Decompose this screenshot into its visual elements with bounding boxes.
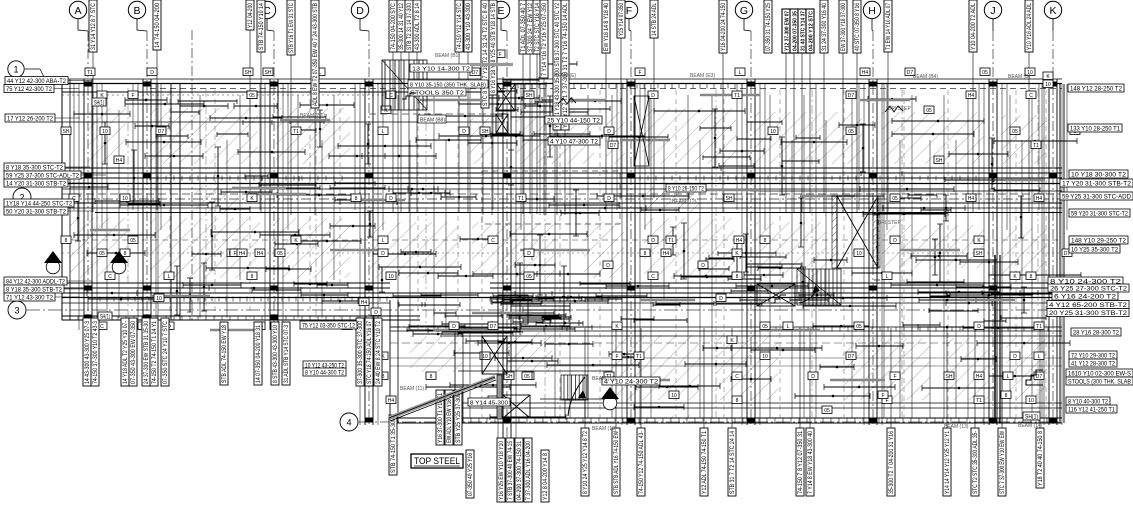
svg-text:20 Y25 31-300 STB-T2: 20 Y25 31-300 STB-T2 bbox=[1049, 311, 1128, 317]
svg-text:D7: D7 bbox=[472, 70, 479, 76]
svg-text:BEAM (E3): BEAM (E3) bbox=[690, 73, 715, 79]
svg-text:40 STC 07-350 8 Y16: 40 STC 07-350 8 Y16 bbox=[855, 2, 861, 51]
svg-text:G: G bbox=[740, 5, 748, 17]
svg-text:D: D bbox=[381, 251, 385, 257]
svg-text:28 Y16 28-300 T2: 28 Y16 28-300 T2 bbox=[1073, 331, 1120, 337]
svg-text:31 24 37-300 Y16 40: 31 24 37-300 Y16 40 bbox=[822, 2, 828, 51]
svg-text:BEAM (13): BEAM (13) bbox=[944, 424, 969, 430]
svg-text:31 ADL STB Y14 STC 07-3: 31 ADL STB Y14 STC 07-3 bbox=[284, 324, 290, 383]
svg-text:D7: D7 bbox=[490, 324, 497, 330]
svg-text:10: 10 bbox=[388, 274, 394, 280]
svg-text:H4: H4 bbox=[1036, 196, 1043, 202]
svg-text:74-150 Y12 74-150 ADL 43-: 74-150 Y12 74-150 ADL 43- bbox=[639, 431, 645, 494]
svg-text:D: D bbox=[452, 324, 456, 330]
svg-text:8: 8 bbox=[251, 274, 254, 280]
svg-text:BRI.STEP: BRI.STEP bbox=[888, 106, 911, 112]
svg-text:05: 05 bbox=[99, 251, 105, 257]
svg-text:BEAM (B4): BEAM (B4) bbox=[913, 74, 938, 80]
svg-text:F: F bbox=[131, 93, 134, 99]
svg-text:BEAM (B8): BEAM (B8) bbox=[420, 118, 445, 124]
svg-text:BEAM (B1): BEAM (B1) bbox=[300, 113, 325, 119]
svg-text:F: F bbox=[893, 374, 896, 380]
svg-text:SH: SH bbox=[946, 374, 953, 380]
svg-text:05: 05 bbox=[526, 274, 532, 280]
svg-text:H4: H4 bbox=[239, 251, 246, 257]
svg-text:8: 8 bbox=[124, 251, 127, 257]
svg-text:116 Y12 41-250 T1: 116 Y12 41-250 T1 bbox=[1068, 408, 1116, 414]
svg-text:H4: H4 bbox=[862, 70, 869, 76]
svg-text:8 Y16 Y18 Y18 Y25 40 STB Y18 1: 8 Y16 Y18 Y18 Y25 40 STB Y18 14 STB bbox=[491, 3, 497, 93]
svg-text:L: L bbox=[739, 70, 742, 76]
svg-text:10: 10 bbox=[1028, 398, 1034, 404]
svg-text:SH(1): SH(1) bbox=[94, 101, 104, 107]
svg-text:35-300 14 31 40 Y12: 35-300 14 31 40 Y12 bbox=[399, 2, 405, 50]
svg-text:TOP STEEL: TOP STEEL bbox=[414, 456, 460, 466]
svg-text:10: 10 bbox=[856, 251, 862, 257]
svg-text:43-300 Y10 43-300: 43-300 Y10 43-300 bbox=[466, 2, 472, 50]
svg-text:T1: T1 bbox=[518, 196, 524, 202]
svg-text:D: D bbox=[719, 296, 723, 302]
svg-text:H4: H4 bbox=[257, 251, 264, 257]
svg-text:F: F bbox=[498, 52, 501, 58]
svg-text:05: 05 bbox=[982, 70, 988, 76]
svg-text:SH: SH bbox=[63, 129, 70, 135]
svg-text:07-350 STC 24 Y10 7 STC: 07-350 STC 24 Y10 7 STC bbox=[163, 320, 169, 384]
svg-text:C: C bbox=[651, 274, 655, 280]
svg-text:T1: T1 bbox=[636, 354, 642, 360]
svg-text:D: D bbox=[1013, 354, 1017, 360]
svg-text:7 STB 37-300 40 EW 74-15: 7 STB 37-300 40 EW 74-15 bbox=[508, 440, 514, 500]
svg-text:H4: H4 bbox=[968, 196, 975, 202]
svg-text:8: 8 bbox=[764, 238, 767, 244]
svg-text:H4: H4 bbox=[976, 374, 983, 380]
svg-text:10: 10 bbox=[770, 129, 776, 135]
svg-text:D7: D7 bbox=[158, 129, 165, 135]
svg-text:8 Y10 35-150 (350 THK. SLAB): 8 Y10 35-150 (350 THK. SLAB) bbox=[410, 83, 486, 89]
svg-text:148 Y10 29-250 T2: 148 Y10 29-250 T2 bbox=[1071, 239, 1127, 245]
svg-text:STB STB ADL Y16 74-150 EW: STB STB ADL Y16 74-150 EW bbox=[614, 431, 620, 494]
svg-text:B: B bbox=[133, 5, 140, 17]
svg-text:13 Y10 14-300 T2: 13 Y10 14-300 T2 bbox=[412, 67, 470, 73]
svg-text:J: J bbox=[990, 5, 995, 17]
svg-text:F: F bbox=[233, 251, 236, 257]
svg-text:EW Y18 14 8 Y18 40: EW Y18 14 8 Y18 40 bbox=[604, 2, 610, 51]
svg-text:05: 05 bbox=[824, 408, 830, 414]
svg-text:8: 8 bbox=[644, 251, 647, 257]
svg-text:STB 31 7 T2 14 STC 24 14: STB 31 7 T2 14 STC 24 14 bbox=[730, 430, 736, 494]
svg-text:14 43-300 43-300 Y25 07-3: 14 43-300 43-300 Y25 07-3 bbox=[85, 320, 91, 384]
svg-text:BEAM (12): BEAM (12) bbox=[672, 199, 697, 205]
svg-text:7 Y14 8 EW Y18 43-300 40: 7 Y14 8 EW Y18 43-300 40 bbox=[808, 430, 814, 494]
svg-text:BEAM (14): BEAM (14) bbox=[1018, 423, 1043, 429]
svg-text:10: 10 bbox=[671, 393, 677, 399]
svg-text:14 74-150 04-200: 14 74-150 04-200 bbox=[155, 2, 161, 48]
svg-text:17 Y12 26-200 T2: 17 Y12 26-200 T2 bbox=[7, 117, 54, 123]
svg-text:STB T2 31 14 37-300: STB T2 31 14 37-300 bbox=[407, 2, 413, 50]
svg-text:8: 8 bbox=[1030, 274, 1033, 280]
svg-text:10: 10 bbox=[156, 296, 162, 302]
svg-text:10 Y18 30-300 T2: 10 Y18 30-300 T2 bbox=[1071, 173, 1127, 179]
svg-text:T1: T1 bbox=[976, 398, 982, 404]
svg-text:Y10 Y16 ADL 24 ADL: Y10 Y16 ADL 24 ADL bbox=[1027, 2, 1033, 50]
svg-text:SH: SH bbox=[526, 93, 533, 99]
svg-text:H: H bbox=[868, 5, 876, 17]
svg-text:D: D bbox=[811, 374, 815, 380]
svg-text:BEAM (13): BEAM (13) bbox=[592, 426, 617, 432]
svg-text:STB Y25 Y25 37-300: STB Y25 Y25 37-300 bbox=[456, 392, 462, 443]
svg-text:05: 05 bbox=[1012, 129, 1018, 135]
svg-text:148 Y12 28-250 T2: 148 Y12 28-250 T2 bbox=[1070, 87, 1123, 93]
svg-text:4: 4 bbox=[346, 418, 351, 428]
svg-text:8 STB 43-300 43-300 Y10: 8 STB 43-300 43-300 Y10 bbox=[273, 324, 279, 383]
svg-text:SH: SH bbox=[726, 196, 733, 202]
svg-text:BEAM (E): BEAM (E) bbox=[554, 73, 577, 79]
svg-text:07-350 43-300 EW 07-350: 07-350 43-300 EW 07-350 bbox=[131, 320, 137, 384]
svg-text:H4: H4 bbox=[736, 238, 743, 244]
svg-text:H4: H4 bbox=[388, 398, 395, 404]
svg-text:T1: T1 bbox=[1036, 324, 1042, 330]
svg-text:74-150 Y12 Y14 STC: 74-150 Y12 Y14 STC bbox=[457, 2, 463, 50]
svg-text:EW 37-300 Y18 37-300: EW 37-300 Y18 37-300 bbox=[841, 2, 847, 51]
svg-text:1: 1 bbox=[13, 65, 18, 75]
svg-text:L: L bbox=[1038, 354, 1041, 360]
svg-text:05: 05 bbox=[762, 324, 768, 330]
svg-text:SH(1): SH(1) bbox=[100, 315, 110, 321]
svg-text:D: D bbox=[527, 251, 531, 257]
svg-text:14 Y20 31-300 STB-T2: 14 Y20 31-300 STB-T2 bbox=[6, 182, 67, 188]
svg-text:STB 74-150 T1 35-300: STB 74-150 T1 35-300 bbox=[391, 417, 397, 473]
svg-text:L: L bbox=[168, 274, 171, 280]
svg-text:D: D bbox=[606, 263, 610, 269]
svg-text:H4: H4 bbox=[361, 300, 368, 306]
svg-text:8 Y10 26-150 T2: 8 Y10 26-150 T2 bbox=[668, 187, 705, 193]
svg-text:8 Y10 44-300 T2: 8 Y10 44-300 T2 bbox=[305, 371, 345, 377]
svg-text:STB Y16 T1 EW 31 STC: STB Y16 T1 EW 31 STC bbox=[289, 2, 295, 53]
svg-text:10: 10 bbox=[1045, 82, 1051, 88]
svg-text:A: A bbox=[74, 5, 81, 17]
svg-text:SH: SH bbox=[936, 158, 943, 164]
svg-text:43-300 ADL T2 8 14: 43-300 ADL T2 8 14 bbox=[415, 2, 421, 50]
svg-text:BRI.STEP: BRI.STEP bbox=[878, 220, 901, 226]
svg-text:BEAM (11): BEAM (11) bbox=[592, 376, 616, 382]
svg-text:8: 8 bbox=[355, 196, 358, 202]
svg-text:STOOLS (300 THK. SLAB: STOOLS (300 THK. SLAB bbox=[1068, 380, 1131, 386]
svg-text:D: D bbox=[374, 310, 378, 316]
svg-text:Y25 Y14 07-350: Y25 Y14 07-350 bbox=[619, 2, 625, 36]
svg-text:37-300 35-300 STC 37-300: 37-300 35-300 STC 37-300 bbox=[358, 320, 364, 384]
svg-text:05: 05 bbox=[856, 324, 862, 330]
svg-text:10: 10 bbox=[482, 354, 488, 360]
svg-text:04-200 Y12 STC: 04-200 Y12 STC bbox=[809, 11, 815, 51]
svg-text:L: L bbox=[382, 129, 385, 135]
svg-text:10: 10 bbox=[762, 354, 768, 360]
svg-text:T1: T1 bbox=[87, 70, 93, 76]
svg-text:44 Y12 42-300 ABA-T2: 44 Y12 42-300 ABA-T2 bbox=[7, 79, 67, 85]
svg-text:STC 8 Y18 7 Y18 T2 14 31 24 T2: STC 8 Y18 7 Y18 T2 14 31 24 T2 STC 8 40 bbox=[483, 2, 489, 106]
svg-text:14 STB 24 ADL: 14 STB 24 ADL bbox=[652, 2, 658, 36]
svg-text:SH: SH bbox=[245, 70, 252, 76]
svg-text:BEAM (B): BEAM (B) bbox=[1008, 74, 1031, 80]
svg-text:8: 8 bbox=[736, 398, 739, 404]
svg-text:14 07-350 04-200 Y18 31: 14 07-350 04-200 Y18 31 bbox=[256, 324, 262, 383]
svg-text:7 Y14 Y16 T2 Y16 Y25 07-350: 7 Y14 Y16 T2 Y16 Y25 07-350 bbox=[542, 2, 548, 76]
svg-text:25 Y10 44-150 T2: 25 Y10 44-150 T2 bbox=[547, 119, 601, 125]
svg-text:50 Y20 31-300 STB-T2: 50 Y20 31-300 STB-T2 bbox=[6, 210, 67, 216]
svg-text:8 Y14 45-300: 8 Y14 45-300 bbox=[470, 401, 508, 407]
svg-text:T1: T1 bbox=[668, 238, 674, 244]
svg-text:L: L bbox=[1007, 374, 1010, 380]
svg-text:F: F bbox=[638, 70, 641, 76]
svg-text:C: C bbox=[1029, 93, 1033, 99]
svg-text:05: 05 bbox=[848, 129, 854, 135]
svg-text:Y14 14 Y14 Y12 Y25 Y12 Y1: Y14 14 Y14 Y12 Y25 Y12 Y1 bbox=[945, 430, 951, 494]
svg-text:05: 05 bbox=[277, 251, 283, 257]
svg-text:SH(1): SH(1) bbox=[1025, 415, 1038, 421]
svg-text:10: 10 bbox=[122, 196, 128, 202]
svg-text:10 Y25 35-300 T2: 10 Y25 35-300 T2 bbox=[1071, 248, 1119, 254]
svg-text:STOOLS 350 T2: STOOLS 350 T2 bbox=[410, 91, 464, 97]
svg-text:D: D bbox=[701, 263, 705, 269]
svg-text:STB ADL 74-150 EW Y18: STB ADL 74-150 EW Y18 bbox=[222, 324, 228, 383]
svg-text:D: D bbox=[607, 196, 611, 202]
svg-text:71 Y12 43-300 T2: 71 Y12 43-300 T2 bbox=[6, 296, 54, 302]
svg-text:D7: D7 bbox=[848, 354, 855, 360]
svg-text:6 Y16 24-200 T2: 6 Y16 24-200 T2 bbox=[1054, 295, 1117, 301]
svg-text:C: C bbox=[735, 374, 739, 380]
svg-text:H4: H4 bbox=[968, 93, 975, 99]
svg-text:STB 74-150 Y10 14: STB 74-150 Y10 14 bbox=[259, 2, 265, 50]
svg-text:D: D bbox=[356, 5, 364, 17]
svg-text:D: D bbox=[977, 324, 981, 330]
svg-text:SH: SH bbox=[482, 129, 489, 135]
svg-text:F: F bbox=[615, 354, 618, 360]
svg-text:24 37-300 EW STB 31 35-30: 24 37-300 EW STB 31 35-30 bbox=[144, 320, 150, 384]
svg-text:L: L bbox=[886, 274, 889, 280]
svg-text:05: 05 bbox=[926, 108, 932, 114]
svg-text:3: 3 bbox=[14, 306, 19, 316]
svg-text:SH: SH bbox=[265, 70, 272, 76]
svg-text:8: 8 bbox=[430, 374, 433, 380]
svg-text:T1: T1 bbox=[293, 129, 299, 135]
svg-text:H4: H4 bbox=[116, 158, 123, 164]
svg-text:T1: T1 bbox=[734, 93, 740, 99]
svg-text:74-150 04-200 STC: 74-150 04-200 STC bbox=[391, 2, 397, 50]
svg-text:8 Y10 24 Y25 Y12 Y14 8 T2: 8 Y10 24 Y25 Y12 Y14 8 T2 bbox=[583, 430, 589, 494]
svg-text:8: 8 bbox=[65, 238, 68, 244]
svg-text:17 Y20 31-300 STB-T2: 17 Y20 31-300 STB-T2 bbox=[1062, 182, 1132, 188]
svg-text:STC 7 37-300 EW Y10 EW EW: STC 7 37-300 EW Y10 EW EW bbox=[1000, 431, 1006, 494]
svg-text:T1: T1 bbox=[1033, 143, 1039, 149]
svg-text:STC T2 STC 35-300 ADL 35-: STC T2 STC 35-300 ADL 35- bbox=[973, 431, 979, 494]
svg-text:74-150 T2 74-150 T1 24 Y1: 74-150 T2 74-150 T1 24 Y1 bbox=[152, 320, 158, 384]
svg-text:74-150 37-300 Y10 T2 43-3: 74-150 37-300 Y10 T2 43-3 bbox=[93, 320, 99, 384]
svg-text:D: D bbox=[651, 93, 655, 99]
svg-text:59 Y20 31-300 STC-T2: 59 Y20 31-300 STC-T2 bbox=[1071, 212, 1129, 218]
svg-text:D: D bbox=[389, 196, 393, 202]
svg-text:D7: D7 bbox=[848, 93, 855, 99]
svg-text:Y18 T2 40 40 74-150 8: Y18 T2 40 40 74-150 8 bbox=[1038, 430, 1044, 486]
svg-text:D: D bbox=[150, 70, 154, 76]
svg-text:07-350 31 74-150 Y25: 07-350 31 74-150 Y25 bbox=[766, 2, 772, 51]
svg-text:75 Y12 42-300 T2: 75 Y12 42-300 T2 bbox=[6, 87, 53, 93]
svg-text:F: F bbox=[881, 393, 884, 399]
svg-text:Y10 04-200 T2 ADL: Y10 04-200 T2 ADL bbox=[971, 2, 977, 50]
svg-text:Y16 04-200 24 74-150: Y16 04-200 24 74-150 bbox=[721, 2, 727, 51]
svg-text:D: D bbox=[607, 129, 611, 135]
svg-text:C: C bbox=[491, 238, 495, 244]
svg-text:31 Y14 Y12 8 7 STC: 31 Y14 Y12 8 7 STC bbox=[91, 2, 97, 50]
svg-text:59 Y25 31-300 STC-ADD: 59 Y25 31-300 STC-ADD bbox=[1062, 195, 1132, 201]
svg-text:05: 05 bbox=[130, 238, 136, 244]
svg-text:L: L bbox=[787, 324, 790, 330]
svg-text:7 37-300 ADL Y16 04-200: 7 37-300 ADL Y16 04-200 bbox=[526, 440, 532, 500]
svg-text:07-350 40 Y25 Y16: 07-350 40 Y25 Y16 bbox=[468, 452, 474, 496]
svg-text:SH: SH bbox=[506, 374, 513, 380]
svg-text:D: D bbox=[462, 129, 466, 135]
svg-text:H4: H4 bbox=[663, 251, 670, 257]
svg-text:Y12 8 04-200 Y14 8: Y12 8 04-200 Y14 8 bbox=[543, 452, 549, 500]
svg-text:10: 10 bbox=[102, 129, 108, 135]
svg-text:75 Y12 03-350 STC-12: 75 Y12 03-350 STC-12 bbox=[302, 324, 356, 330]
svg-text:ADL 8 EW T2 07-350 EW 40 7 24: ADL 8 EW T2 07-350 EW 40 7 24 43-300 STB bbox=[313, 3, 319, 106]
svg-text:05: 05 bbox=[524, 374, 530, 380]
svg-text:14 Y18 ADL T2 Y25 Y10 07-: 14 Y18 ADL T2 Y25 Y10 07- bbox=[123, 321, 129, 384]
svg-text:C: C bbox=[108, 274, 112, 280]
svg-text:L: L bbox=[382, 238, 385, 244]
svg-text:4 Y10 47-300 T2: 4 Y10 47-300 T2 bbox=[550, 140, 599, 146]
svg-text:D: D bbox=[893, 238, 897, 244]
svg-text:BEAM (B1): BEAM (B1) bbox=[435, 53, 460, 59]
svg-text:41 Y12 28-300 T2: 41 Y12 28-300 T2 bbox=[1071, 362, 1116, 368]
svg-text:05: 05 bbox=[249, 93, 255, 99]
svg-text:T1 EW 14 Y10 ADL 07: T1 EW 14 Y10 ADL 07 bbox=[886, 2, 892, 50]
svg-text:F: F bbox=[626, 5, 632, 17]
svg-text:24 40 EW 8 24 STC Y10 T2: 24 40 EW 8 24 STC Y10 T2 bbox=[376, 320, 382, 384]
svg-text:35-300 T2 7 04-200 31 Y16: 35-300 T2 7 04-200 31 Y16 bbox=[889, 430, 895, 494]
svg-text:05: 05 bbox=[892, 196, 898, 202]
svg-text:D: D bbox=[651, 238, 655, 244]
svg-text:8: 8 bbox=[1005, 393, 1008, 399]
svg-text:SH: SH bbox=[976, 251, 983, 257]
svg-text:Y16 Y25 EW Y10 Y18 Y10: Y16 Y25 EW Y10 Y18 Y10 bbox=[499, 440, 505, 500]
svg-text:Y25 T1 Y18 43-300 35-300 STB 3: Y25 T1 Y18 43-300 35-300 STB 37-300 STC … bbox=[555, 2, 561, 128]
svg-text:EW ADL Y10 EW Y16 24: EW ADL Y10 EW Y16 24 bbox=[447, 393, 453, 443]
svg-text:D7: D7 bbox=[610, 143, 617, 149]
svg-text:04-200 37-300 74-150 31: 04-200 37-300 74-150 31 bbox=[517, 440, 523, 500]
svg-text:Y12 04-200: Y12 04-200 bbox=[248, 2, 254, 28]
svg-text:BEAM (11): BEAM (11) bbox=[400, 386, 424, 392]
svg-text:C: C bbox=[100, 324, 104, 330]
svg-text:STC Y18 74-150 ADL Y16 07: STC Y18 74-150 ADL Y16 07 bbox=[367, 320, 373, 384]
svg-text:8: 8 bbox=[736, 274, 739, 280]
svg-text:133 Y10 28-250 T1: 133 Y10 28-250 T1 bbox=[1070, 127, 1121, 133]
svg-text:K: K bbox=[1049, 5, 1056, 17]
svg-text:Y18 Y12 7 T1 7 37-300 31 T2 7: Y18 Y12 7 T1 7 37-300 31 T2 7 Y16 74-150… bbox=[563, 2, 569, 128]
svg-text:Y12 ADL 74-150 74-150 T1: Y12 ADL 74-150 74-150 T1 bbox=[702, 430, 708, 494]
svg-text:D7: D7 bbox=[1036, 374, 1043, 380]
svg-text:E: E bbox=[497, 5, 504, 17]
svg-text:74-150 7 8 Y12 07-350 31: 74-150 7 8 Y12 07-350 31 bbox=[798, 430, 804, 494]
